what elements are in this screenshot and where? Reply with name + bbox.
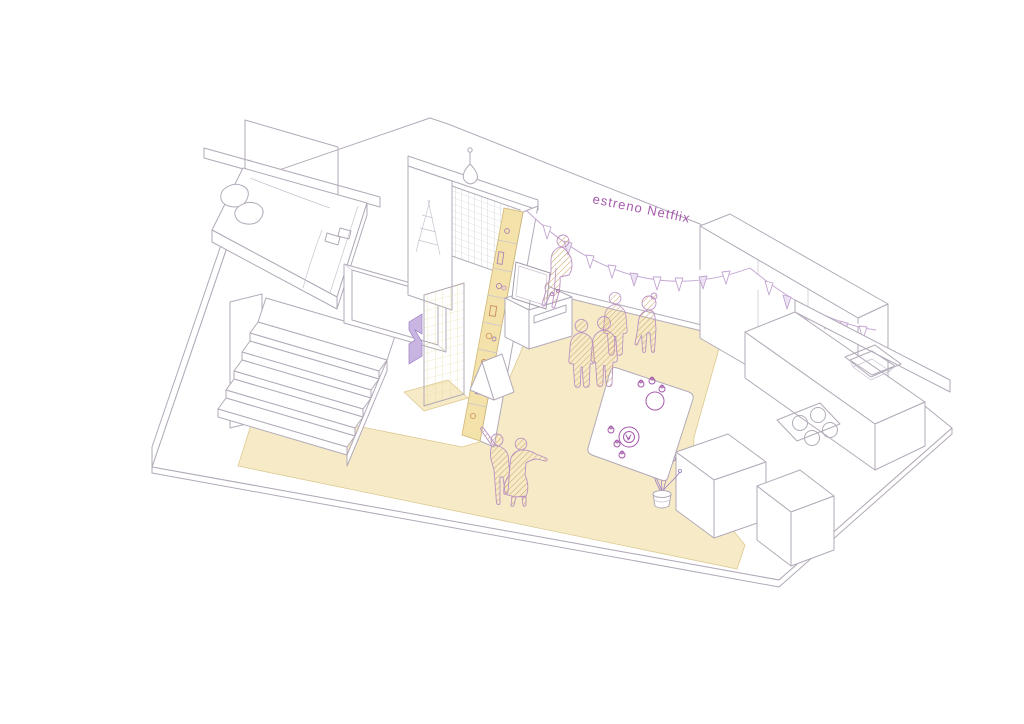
- apartment-axonometric: estreno Netflix: [0, 0, 1024, 724]
- axonometric-drawing: estreno Netflix: [0, 0, 1024, 724]
- tiled-wall: [424, 283, 464, 406]
